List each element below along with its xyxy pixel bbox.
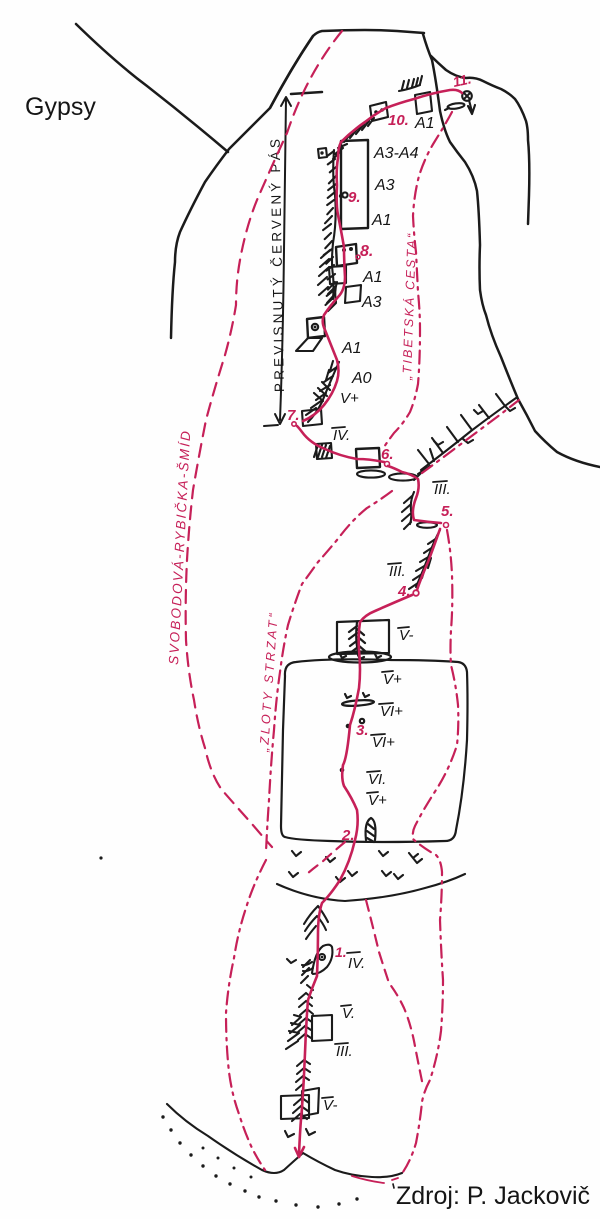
svg-text:1.: 1. (335, 944, 347, 960)
svg-text:2.: 2. (341, 827, 355, 844)
svg-text:A0: A0 (351, 370, 372, 387)
svg-text:V-: V- (323, 1097, 337, 1114)
svg-text:5.: 5. (441, 503, 454, 520)
svg-text:6.: 6. (381, 446, 394, 463)
svg-text:A1: A1 (414, 115, 435, 132)
svg-text:3.: 3. (356, 722, 369, 739)
svg-text:IV.: IV. (348, 955, 365, 972)
svg-text:4.: 4. (397, 583, 411, 600)
svg-text:Zdroj: P. Jackovič: Zdroj: P. Jackovič (396, 1182, 590, 1210)
svg-text:Gypsy: Gypsy (25, 93, 96, 121)
svg-text:A1: A1 (362, 269, 383, 286)
svg-text:VI+: VI+ (380, 703, 403, 720)
svg-text:8.: 8. (360, 243, 373, 260)
svg-text:III.: III. (336, 1043, 353, 1060)
svg-text:VI+: VI+ (372, 734, 395, 751)
svg-text:9.: 9. (348, 189, 361, 206)
svg-text:V.: V. (342, 1005, 355, 1022)
svg-text:A3: A3 (374, 177, 395, 194)
svg-text:III.: III. (434, 481, 451, 498)
svg-text:V+: V+ (383, 671, 402, 688)
svg-text:IV.: IV. (333, 427, 350, 444)
svg-text:A1: A1 (341, 340, 362, 357)
svg-text:A1: A1 (371, 212, 392, 229)
svg-text:VI.: VI. (368, 771, 386, 788)
svg-text:A3: A3 (361, 294, 382, 311)
svg-text:A3-A4: A3-A4 (373, 145, 419, 162)
svg-text:V+: V+ (340, 390, 359, 407)
svg-text:10.: 10. (388, 112, 409, 129)
svg-text:V-: V- (399, 627, 413, 644)
svg-text:III.: III. (389, 563, 406, 580)
svg-text:V+: V+ (368, 792, 387, 809)
